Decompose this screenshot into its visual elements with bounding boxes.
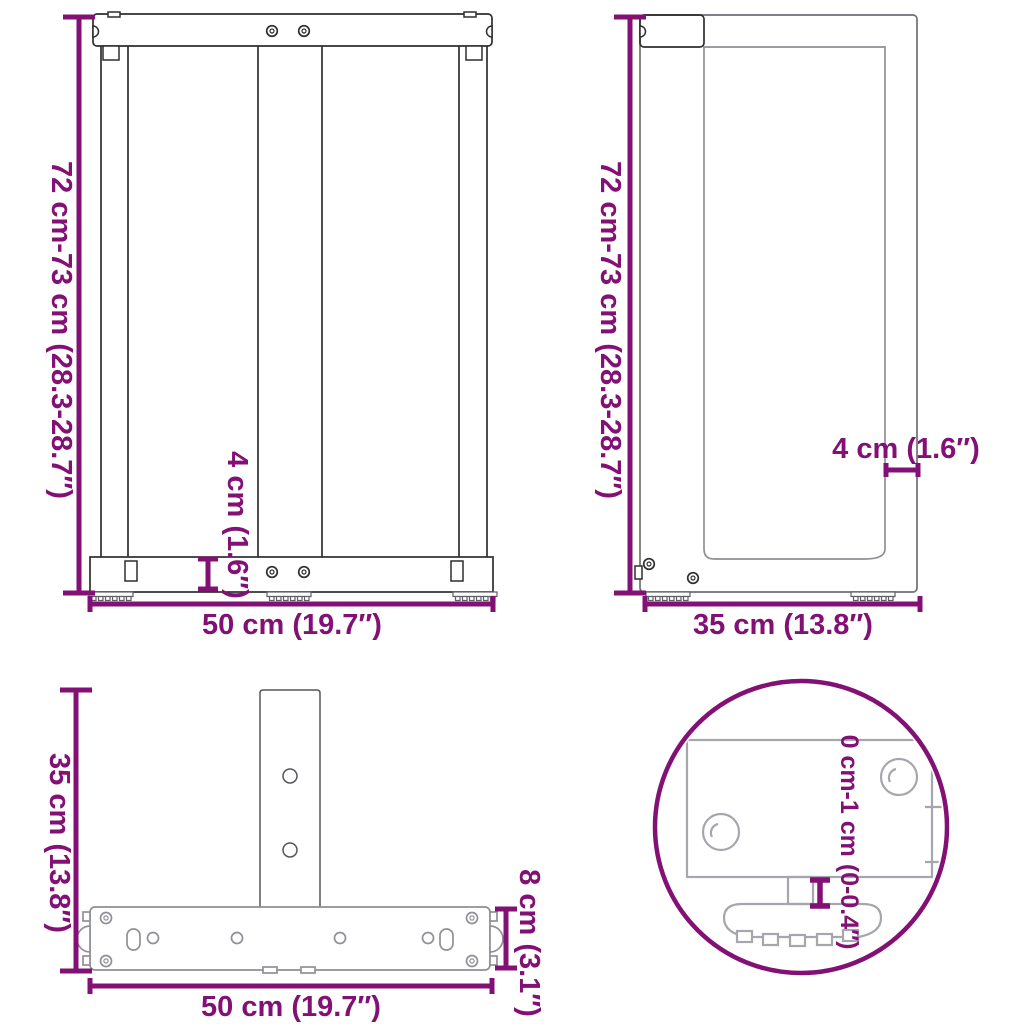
screw-icon [101,913,112,924]
edge-tab [490,912,497,921]
oval-slot [440,929,453,950]
top-base-depth-label: 8 cm (3.1″) [513,869,545,1017]
foot-tooth [790,935,805,946]
stem-hole [283,769,297,783]
stem-hole [283,843,297,857]
screw-icon [703,814,739,850]
round-hole [423,933,434,944]
screw-icon [299,26,310,37]
edge-tab [83,956,90,965]
center-stem-column [258,46,322,557]
foot-tooth [737,931,752,942]
plate-end-cap [640,15,704,47]
round-hole [232,933,243,944]
adjustable-foot [89,592,133,601]
plate-edge-cutout [640,26,646,37]
foot-threaded-stem [788,877,813,904]
adjustable-foot [453,592,497,601]
foot-edge-bump [490,926,503,952]
side-outline [640,15,917,592]
plate-edge-cutout [93,26,99,37]
bar-thickness-marker [198,559,218,589]
adjustment-range-label: 0 cm-1 cm (0-0.4″) [835,735,863,950]
front-view: 72 cm-73 cm (28.3-28.7″) 50 cm (19.7″) 4… [45,12,497,641]
base-clip [125,561,137,581]
round-hole [335,933,346,944]
front-height-label: 72 cm-73 cm (28.3-28.7″) [45,161,77,499]
bottom-base-bar [90,557,493,592]
edge-tab-marks [925,807,942,862]
foot-tooth [817,934,832,945]
side-panel-thickness-label: 4 cm (1.6″) [832,433,980,465]
screw-icon [101,956,112,967]
front-bar-thickness-label: 4 cm (1.6″) [221,451,253,599]
screw-icon [467,956,478,967]
side-view: 72 cm-73 cm (28.3-28.7″) 35 cm (13.8″) 4… [594,15,980,641]
front-view-drawing [89,12,497,601]
screw-icon [467,913,478,924]
detail-drawing [687,740,942,946]
base-bar-plate [90,907,490,970]
adjustable-foot [646,592,690,601]
plate-seam-notch [108,12,120,17]
foot-tooth [763,934,778,945]
edge-tab [490,956,497,965]
side-view-drawing [635,15,917,601]
round-hole [148,933,159,944]
bottom-tab [263,967,277,973]
mount-clip [466,46,482,60]
top-mounting-plate [93,14,492,46]
screw-icon [267,26,278,37]
screw-icon [299,567,310,578]
top-view-drawing [77,690,503,973]
base-edge-tab [635,566,642,579]
top-width-label: 50 cm (19.7″) [201,991,381,1023]
plate-edge-cutout [487,26,492,37]
screw-icon [881,759,917,795]
screw-icon [267,567,278,578]
oval-slot [127,929,140,950]
dimension-diagram-page: 72 cm-73 cm (28.3-28.7″) 50 cm (19.7″) 4… [0,0,1024,1024]
plate-seam-notch [464,12,476,17]
detail-circle [655,681,947,973]
panel-thickness-marker [886,463,918,477]
mount-clip [103,46,119,60]
top-depth-label: 35 cm (13.8″) [43,753,75,933]
detail-view: 0 cm-1 cm (0-0.4″) [655,681,947,973]
diagram-canvas: 72 cm-73 cm (28.3-28.7″) 50 cm (19.7″) 4… [0,0,1024,1024]
top-view: 35 cm (13.8″) 50 cm (19.7″) 8 cm (3.1″) [43,690,545,1023]
base-bar-corner [687,740,932,877]
inner-panel-line [704,47,885,559]
side-depth-label: 35 cm (13.8″) [693,609,873,641]
side-height-label: 72 cm-73 cm (28.3-28.7″) [594,161,626,499]
screw-icon [688,573,699,584]
base-clip [451,561,463,581]
screw-icon [644,559,655,570]
stem-plate [260,690,320,907]
adjustable-foot [851,592,895,601]
side-edge-columns [101,46,487,557]
adjustable-foot [267,592,311,601]
edge-tab [83,912,90,921]
front-width-label: 50 cm (19.7″) [202,609,382,641]
foot-edge-bump [77,926,90,952]
bottom-tab [301,967,315,973]
